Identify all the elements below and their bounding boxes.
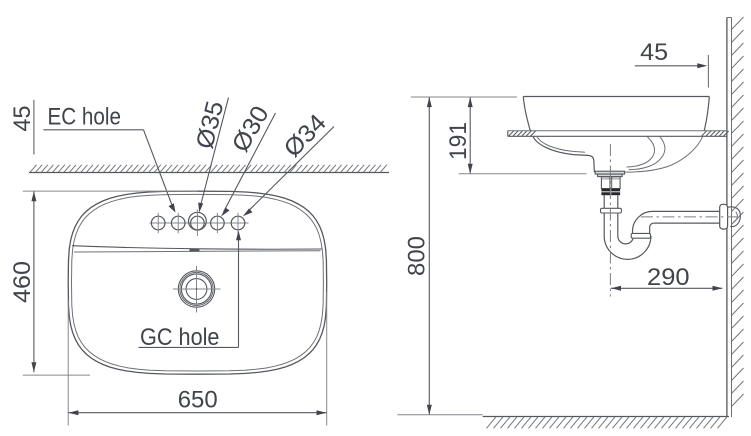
svg-text:191: 191 bbox=[445, 122, 472, 160]
svg-text:460: 460 bbox=[9, 261, 36, 303]
svg-text:EC hole: EC hole bbox=[48, 104, 122, 131]
svg-text:45: 45 bbox=[9, 106, 36, 132]
svg-text:45: 45 bbox=[640, 39, 668, 66]
svg-text:290: 290 bbox=[647, 264, 690, 291]
svg-text:650: 650 bbox=[178, 387, 218, 414]
svg-text:800: 800 bbox=[404, 236, 431, 276]
svg-text:Ø35: Ø35 bbox=[191, 98, 229, 151]
